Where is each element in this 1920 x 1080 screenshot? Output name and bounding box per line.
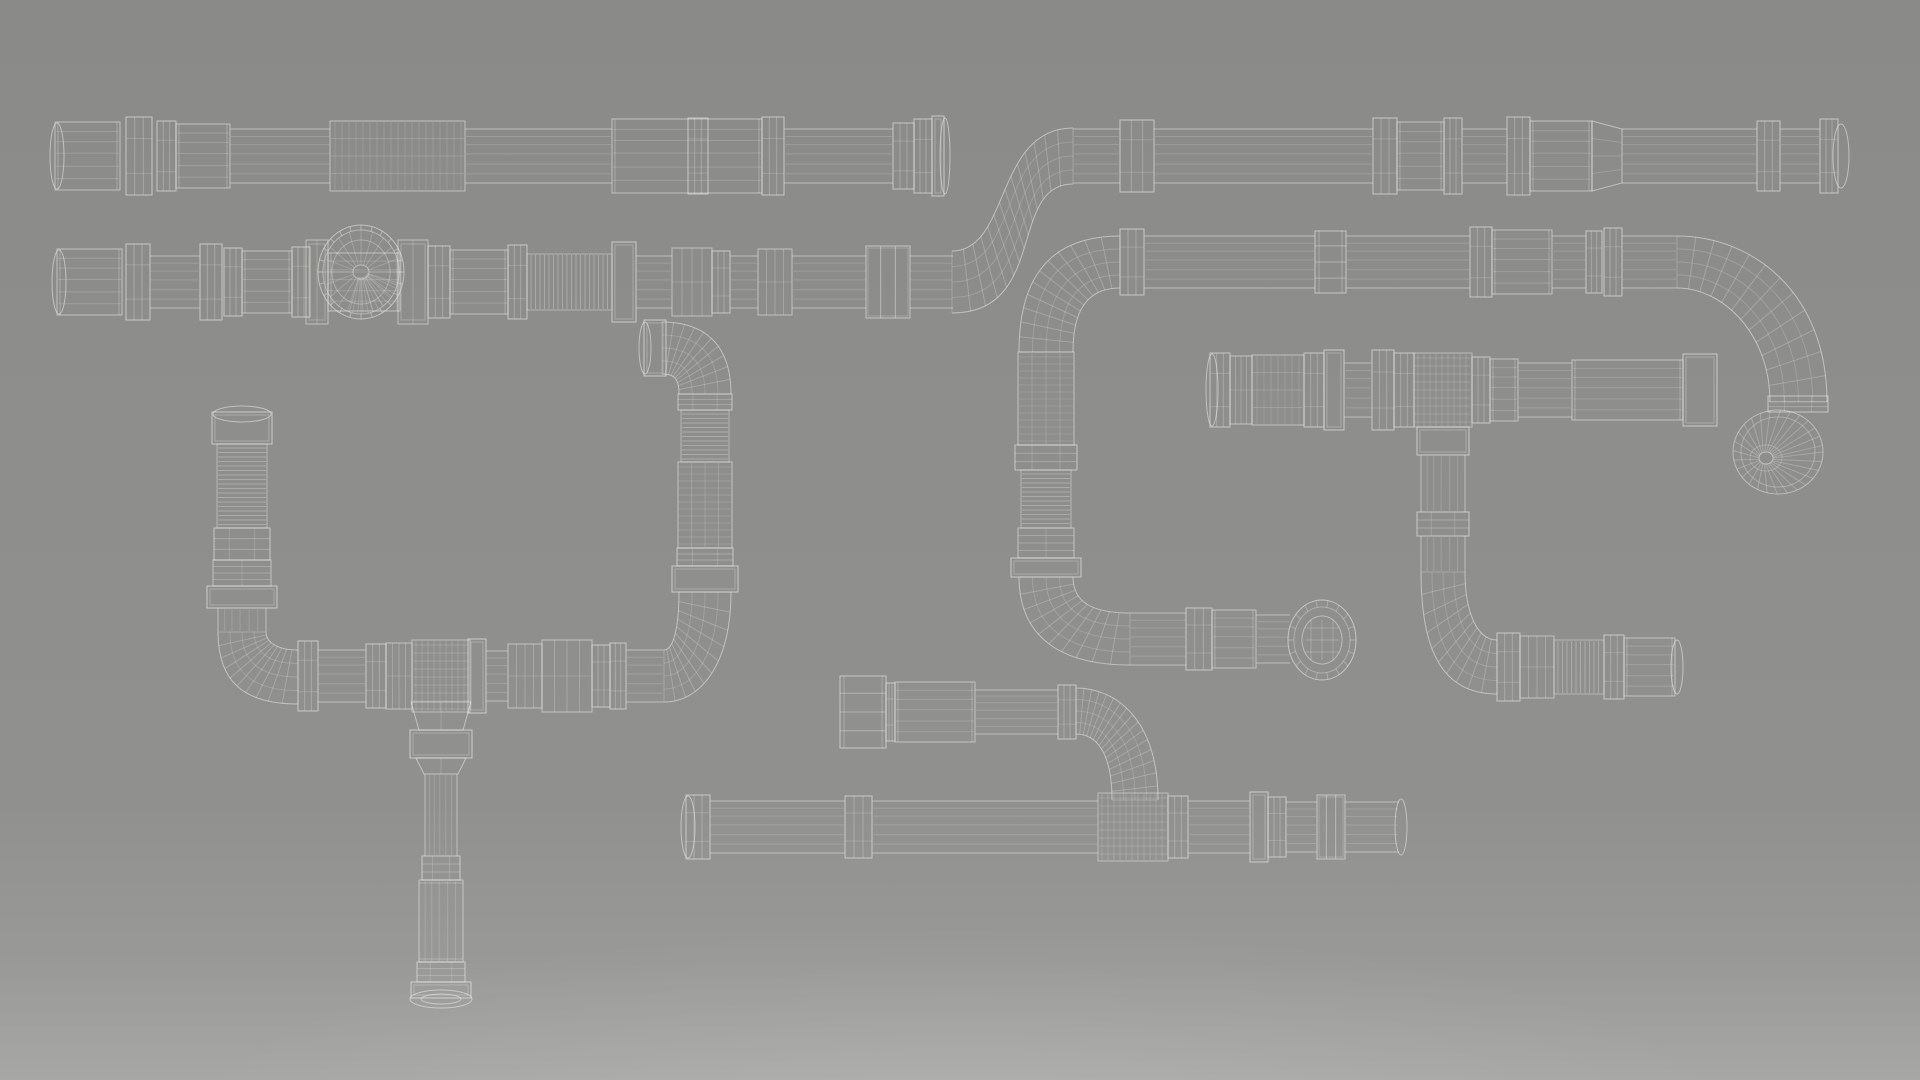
- vertical-left-pipe: [207, 406, 298, 704]
- render-viewport: [0, 0, 1920, 1080]
- pipes-wireframe-render: [0, 0, 1920, 1080]
- pipe-top-left-run: [50, 116, 950, 196]
- pipe-second-left-run: [52, 225, 953, 324]
- vertical-center-pipe: [639, 320, 738, 592]
- run-bottom-mid: [681, 792, 1407, 862]
- pipe-right-mid-run: [1206, 350, 1717, 430]
- pipe-hex-branch: [840, 676, 1158, 800]
- branch-bottom-left-down: [410, 702, 472, 1008]
- branch-right-mid-down: [1417, 427, 1683, 701]
- run-bottom-left: [298, 592, 731, 713]
